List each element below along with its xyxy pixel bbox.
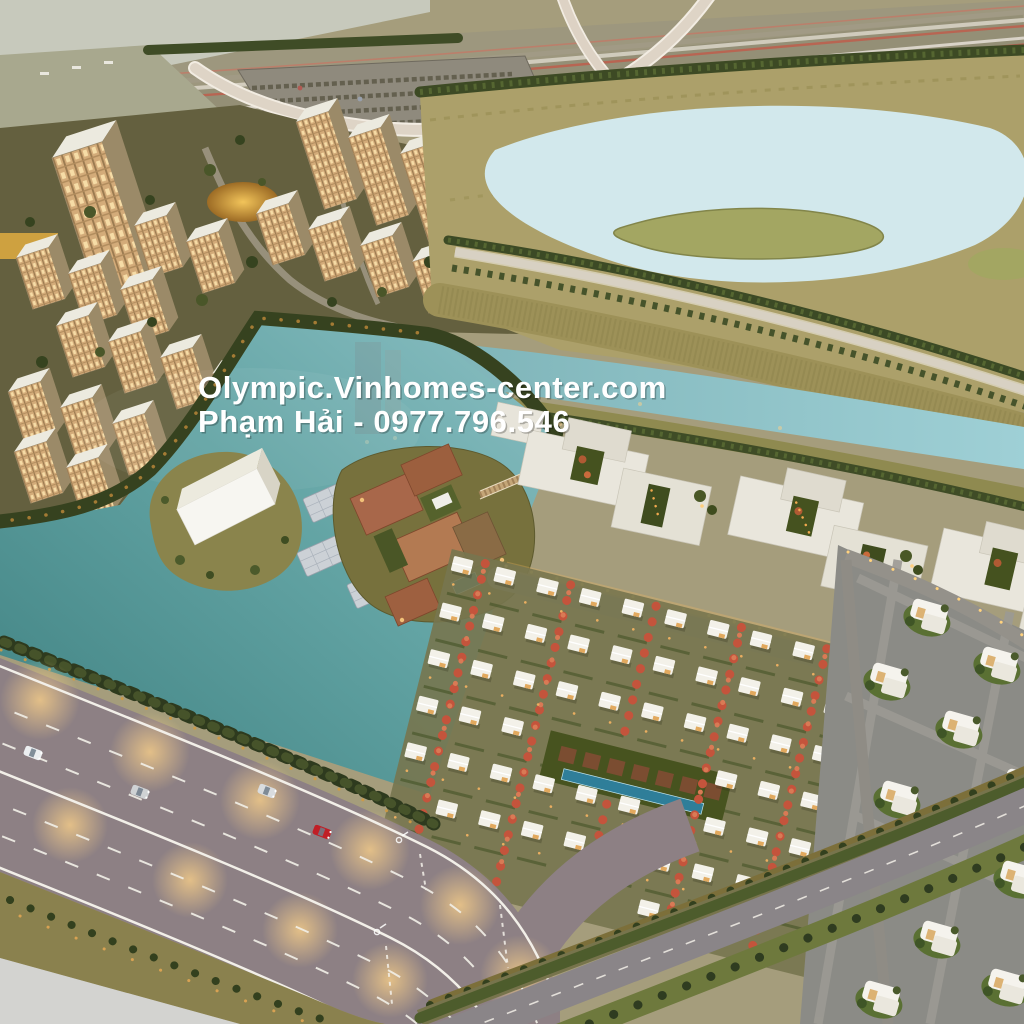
- watermark-line1: Olympic.Vinhomes-center.com: [198, 370, 667, 405]
- aerial-render: Olympic.Vinhomes-center.com Olympic.Vinh…: [0, 0, 1024, 1024]
- watermark-line2: Phạm Hải - 0977.796.546: [198, 404, 570, 439]
